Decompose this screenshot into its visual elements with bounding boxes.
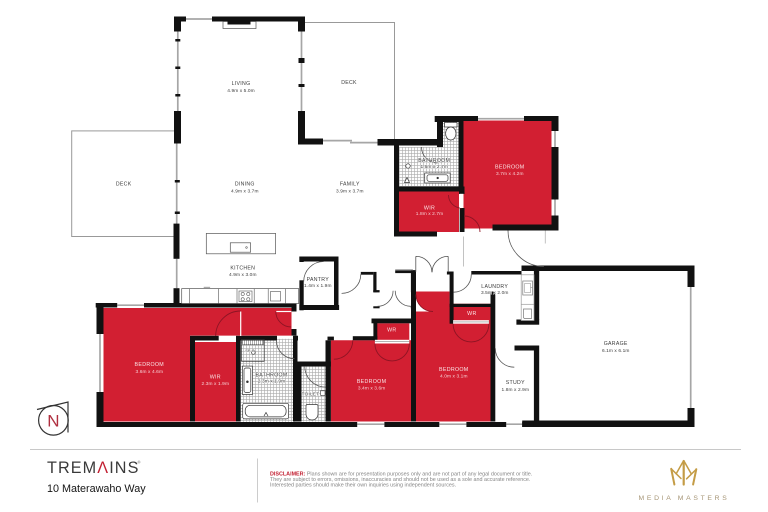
svg-text:WR: WR (467, 311, 476, 317)
svg-text:MEDIA MASTERS: MEDIA MASTERS (639, 495, 730, 502)
svg-text:SP O: SP O (245, 349, 254, 353)
svg-text:3.7m x 4.2m: 3.7m x 4.2m (496, 171, 524, 177)
svg-text:BEDROOM: BEDROOM (439, 367, 468, 373)
svg-text:3.5m x 2.0m: 3.5m x 2.0m (481, 290, 509, 296)
svg-text:BEDROOM: BEDROOM (135, 362, 164, 368)
svg-text:1.6m x 2.7m: 1.6m x 2.7m (420, 164, 448, 170)
svg-text:BATHROOM: BATHROOM (418, 158, 450, 164)
svg-text:LAUNDRY: LAUNDRY (481, 284, 508, 290)
svg-text:FAMILY: FAMILY (340, 182, 360, 188)
svg-text:TREMΛINS: TREMΛINS (47, 459, 139, 477)
svg-text:BATHROOM: BATHROOM (256, 373, 288, 379)
svg-text:N: N (47, 412, 59, 431)
svg-text:DINING: DINING (235, 182, 255, 188)
svg-text:WIR: WIR (210, 374, 221, 380)
svg-text:DECK: DECK (341, 80, 357, 86)
svg-text:3.9m x 3.7m: 3.9m x 3.7m (336, 188, 364, 194)
svg-text:GARAGE: GARAGE (604, 341, 628, 347)
svg-text:Interested parties should make: Interested parties should make their own… (270, 482, 456, 488)
svg-text:TOILET: TOILET (302, 392, 320, 397)
svg-text:4.9m x 3.7m: 4.9m x 3.7m (231, 188, 259, 194)
svg-text:DECK: DECK (116, 182, 132, 188)
svg-text:3.4m x 3.6m: 3.4m x 3.6m (358, 385, 386, 391)
svg-text:BEDROOM: BEDROOM (357, 379, 386, 385)
svg-text:PANTRY: PANTRY (307, 277, 330, 283)
svg-text:1.8m x 2.7m: 1.8m x 2.7m (416, 211, 444, 217)
svg-text:BEDROOM: BEDROOM (495, 165, 524, 171)
svg-text:®: ® (138, 460, 141, 465)
svg-text:4.9m x 3.0m: 4.9m x 3.0m (229, 272, 257, 278)
svg-text:2.3m x 1.9m: 2.3m x 1.9m (202, 381, 230, 387)
svg-text:2.3m x 1.9m: 2.3m x 1.9m (258, 379, 286, 385)
svg-text:KITCHEN: KITCHEN (230, 266, 255, 272)
svg-text:4.9m x 5.0m: 4.9m x 5.0m (227, 88, 255, 94)
svg-text:6.1m x 6.1m: 6.1m x 6.1m (602, 348, 630, 354)
svg-text:4.0m x 3.1m: 4.0m x 3.1m (440, 374, 468, 380)
svg-text:STUDY: STUDY (506, 380, 525, 386)
svg-text:10 Materawaho Way: 10 Materawaho Way (47, 483, 146, 495)
svg-text:WIR: WIR (424, 205, 435, 211)
svg-text:1.4m x 1.9m: 1.4m x 1.9m (304, 283, 332, 289)
svg-text:1.8m x 2.9m: 1.8m x 2.9m (502, 387, 530, 393)
svg-text:LIVING: LIVING (232, 81, 251, 87)
svg-text:3.6m x 4.6m: 3.6m x 4.6m (136, 369, 164, 375)
svg-text:WR: WR (387, 328, 396, 334)
